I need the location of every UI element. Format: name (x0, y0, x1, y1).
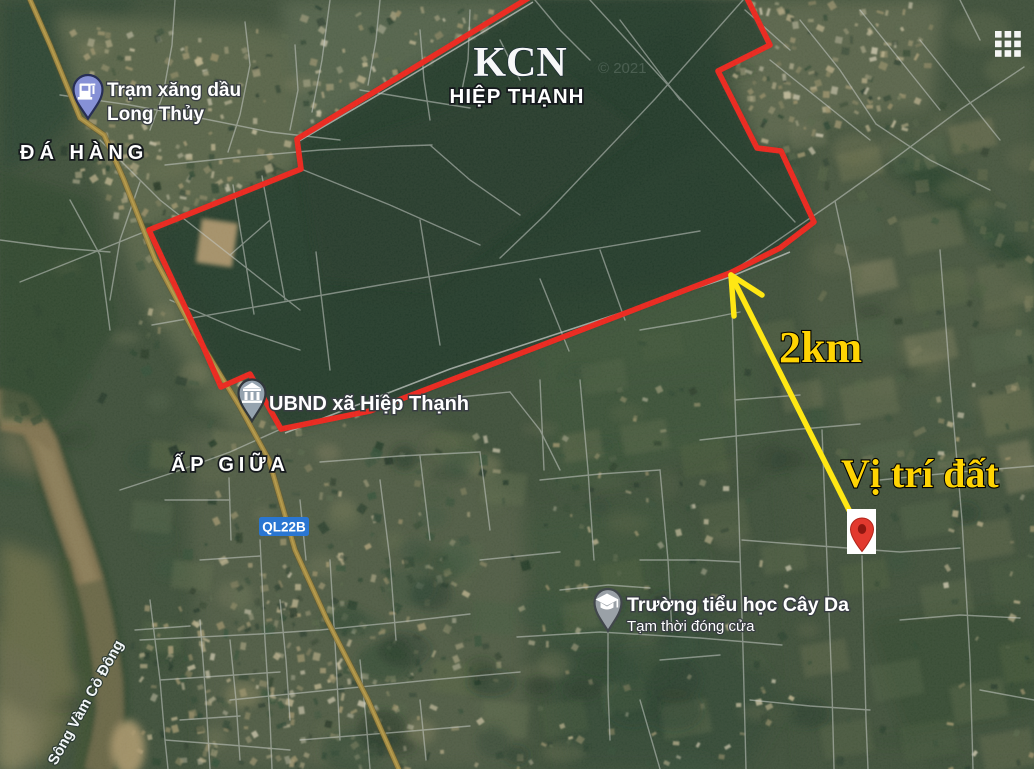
svg-text:ĐÁ HÀNG: ĐÁ HÀNG (20, 141, 148, 164)
svg-text:Tạm thời đóng cửa: Tạm thời đóng cửa (627, 618, 755, 635)
svg-text:2km: 2km (779, 323, 862, 372)
svg-text:© 2021: © 2021 (598, 60, 647, 77)
svg-text:KCN: KCN (473, 40, 566, 86)
svg-text:Vị trí đất: Vị trí đất (841, 451, 999, 496)
svg-text:HIỆP THẠNH: HIỆP THẠNH (450, 84, 585, 108)
svg-text:QL22B: QL22B (262, 520, 306, 535)
svg-text:ẤP GIỮA: ẤP GIỮA (171, 452, 290, 476)
svg-text:Trường tiểu học Cây Da: Trường tiểu học Cây Da (627, 594, 849, 616)
svg-text:UBND xã Hiệp Thạnh: UBND xã Hiệp Thạnh (269, 393, 469, 415)
svg-text:Long Thủy: Long Thủy (107, 104, 205, 125)
svg-text:Trạm xăng dầu: Trạm xăng dầu (107, 80, 241, 101)
